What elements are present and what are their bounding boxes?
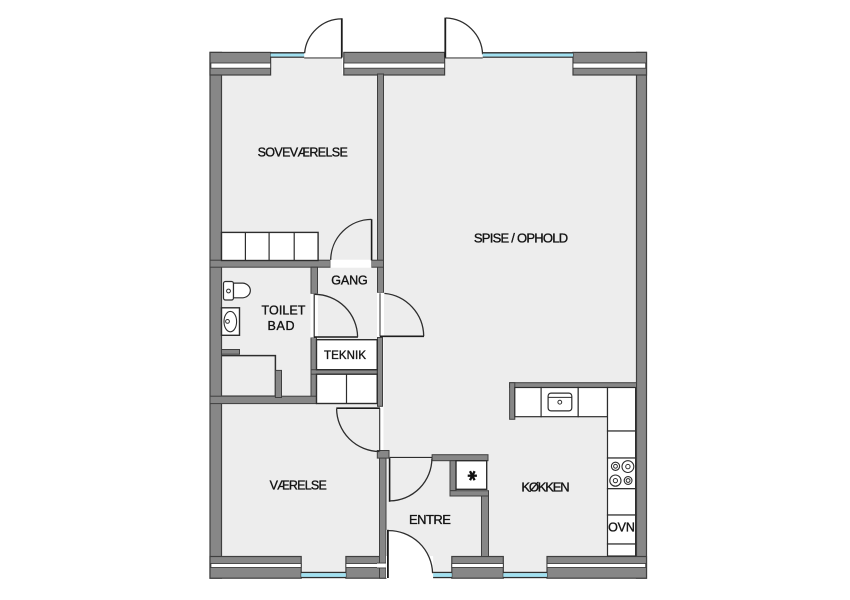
svg-text:OVN: OVN xyxy=(608,521,635,535)
svg-text:SPISE / OPHOLD: SPISE / OPHOLD xyxy=(474,231,568,246)
svg-text:TEKNIK: TEKNIK xyxy=(324,350,366,362)
svg-text:SOVEVÆRELSE: SOVEVÆRELSE xyxy=(258,146,348,160)
svg-text:BAD: BAD xyxy=(267,319,294,333)
svg-text:KØKKEN: KØKKEN xyxy=(521,480,569,495)
svg-text:GANG: GANG xyxy=(331,273,367,287)
svg-text:ENTRE: ENTRE xyxy=(409,512,451,527)
svg-text:VÆRELSE: VÆRELSE xyxy=(270,478,327,492)
svg-text:TOILET: TOILET xyxy=(262,303,306,317)
